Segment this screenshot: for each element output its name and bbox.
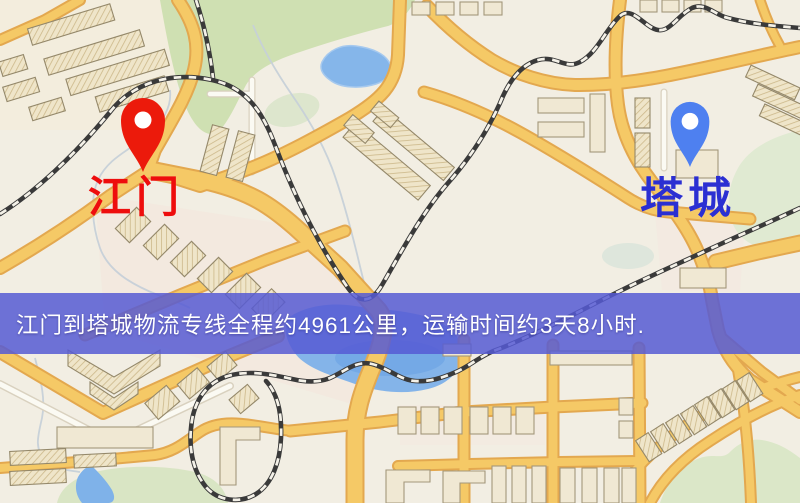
map-canvas[interactable] bbox=[0, 0, 800, 503]
origin-city-label: 江门 bbox=[88, 177, 184, 220]
destination-city-label: 塔城 bbox=[640, 178, 736, 221]
route-info-banner: 江门到塔城物流专线全程约4961公里，运输时间约3天8小时. bbox=[0, 293, 800, 354]
route-info-text: 江门到塔城物流专线全程约4961公里，运输时间约3天8小时. bbox=[16, 308, 645, 340]
map-screenshot: 江门 塔城 江门到塔城物流专线全程约4961公里，运输时间约3天8小时. bbox=[0, 0, 800, 503]
